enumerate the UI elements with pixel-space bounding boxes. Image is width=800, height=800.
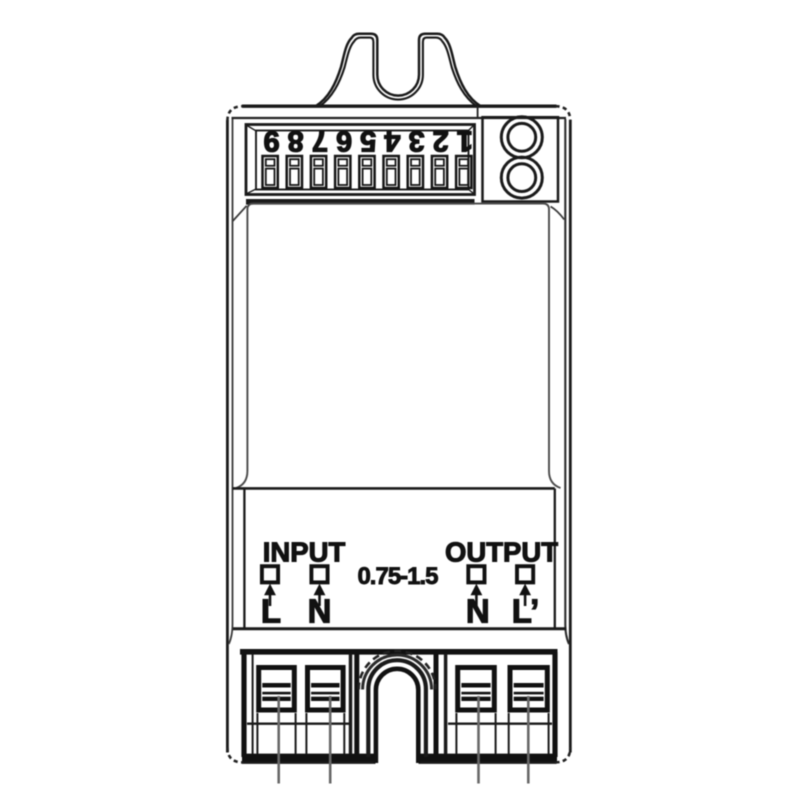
svg-text:4: 4 — [384, 125, 400, 157]
svg-text:5: 5 — [360, 125, 376, 157]
svg-text:6: 6 — [336, 125, 352, 157]
svg-text:9: 9 — [264, 125, 280, 157]
svg-text:1: 1 — [457, 125, 473, 157]
svg-text:N: N — [466, 593, 490, 630]
svg-text:7: 7 — [312, 125, 328, 157]
svg-text:OUTPUT: OUTPUT — [445, 537, 558, 568]
svg-text:L’: L’ — [512, 593, 540, 630]
svg-text:N: N — [308, 593, 332, 630]
svg-text:0.75-1.5: 0.75-1.5 — [357, 563, 438, 590]
svg-text:2: 2 — [433, 125, 449, 157]
svg-text:INPUT: INPUT — [263, 537, 346, 568]
svg-text:3: 3 — [408, 125, 424, 157]
svg-text:L: L — [261, 593, 281, 630]
svg-text:8: 8 — [288, 125, 304, 157]
